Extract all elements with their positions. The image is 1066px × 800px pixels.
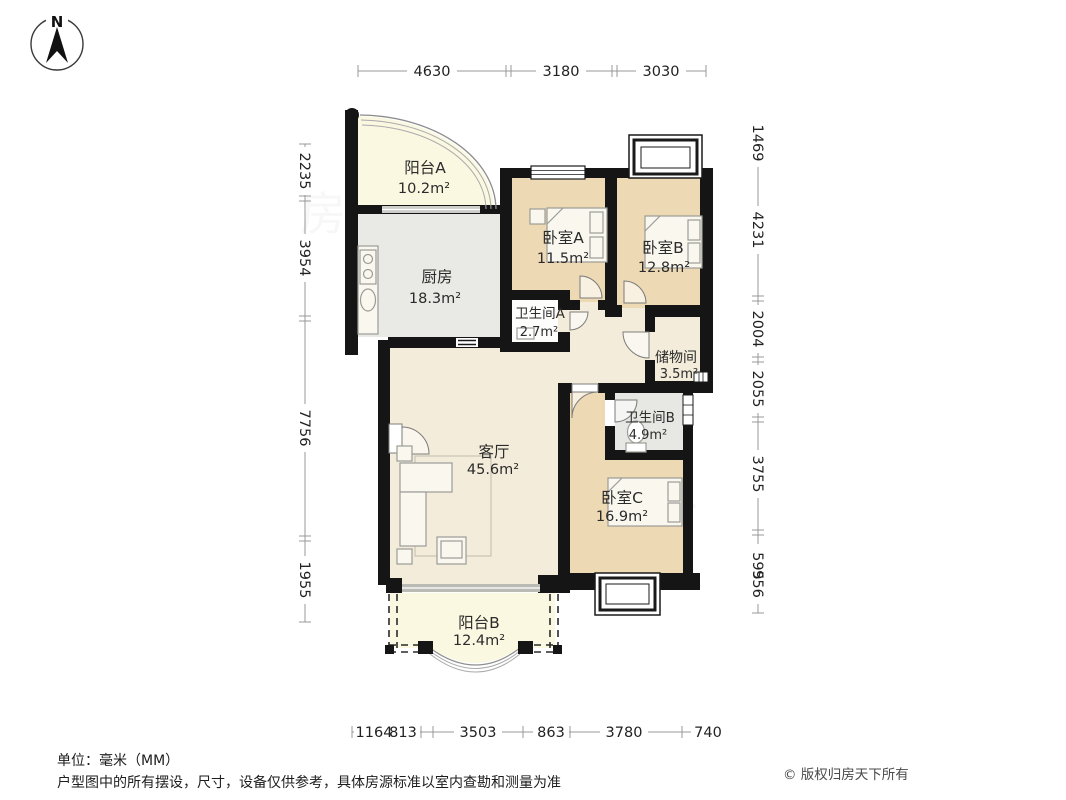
wall-bedroom-a-left — [500, 168, 512, 300]
dim-label-left: 7756 — [296, 410, 312, 447]
floorplan-canvas: 房天下 房天下 — [0, 0, 1066, 800]
disclaimer-note: 户型图中的所有摆设，尺寸，设备仅供参考，具体房源标准以室内查勘和测量为准 — [57, 772, 561, 792]
living-side-table — [397, 549, 412, 564]
wall-living-bottom-left — [386, 578, 402, 593]
wall-cap — [518, 641, 533, 654]
room-area-living: 45.6m² — [467, 462, 519, 478]
room-label-bedroom-b: 卧室B — [642, 239, 684, 257]
compass-icon: N — [31, 12, 83, 70]
room-label-bedroom-a: 卧室A — [542, 229, 584, 247]
room-label-storage: 储物间 — [655, 350, 697, 366]
wall-bedroom-c-bottom-l — [558, 573, 597, 590]
bedroom-c-door-leaf — [572, 384, 598, 392]
dim-label-top: 3180 — [543, 64, 580, 80]
toilet-tank — [626, 443, 646, 452]
room-label-bath-b: 卫生间B — [625, 410, 675, 426]
living-sofa-side — [400, 492, 426, 546]
wall-bath-a-left — [500, 290, 512, 352]
wall-corridor-bottom-2 — [598, 383, 610, 393]
dim-label-right: 4231 — [749, 212, 765, 249]
dim-label-bottom: 1164 — [356, 725, 393, 741]
bedroom-a-nightstand — [530, 209, 545, 224]
wall-cap — [418, 641, 433, 654]
wall-kitchen-corner — [345, 337, 358, 355]
wall-cap — [385, 645, 394, 654]
room-label-balcony-a: 阳台A — [404, 159, 446, 177]
room-area-bedroom-c: 16.9m² — [596, 509, 648, 525]
room-area-bedroom-b: 12.8m² — [638, 260, 690, 276]
floorplan-page: 房天下 房天下 — [0, 0, 1066, 800]
wall-kitchen-bottom — [388, 337, 502, 348]
wall-bedroom-c-bottom-r — [658, 573, 700, 590]
wall-bath-b-bottom — [605, 450, 693, 460]
wall-bath-a-right-2 — [558, 332, 570, 352]
wall-bath-b-top — [605, 383, 693, 393]
room-area-kitchen: 18.3m² — [409, 291, 461, 307]
wall-left-upper — [345, 110, 358, 355]
room-label-living: 客厅 — [478, 443, 509, 461]
wall-bedroom-b-bottom-2 — [645, 305, 712, 317]
room-area-balcony-b: 12.4m² — [453, 633, 505, 649]
room-label-balcony-b: 阳台B — [458, 614, 500, 632]
room-area-bath-a: 2.7m² — [520, 325, 559, 340]
dim-label-bottom: 813 — [389, 725, 417, 741]
wall-right-upper — [700, 168, 713, 390]
bed-pillow — [590, 212, 603, 233]
wall-bath-b-right-2 — [683, 425, 693, 460]
dim-label-left: 3954 — [296, 240, 312, 277]
wall-bedroom-b-bottom-1 — [605, 305, 622, 317]
dim-label-right: 2055 — [749, 371, 765, 408]
dim-label-left: 2235 — [296, 153, 312, 190]
living-sofa-top — [400, 463, 452, 492]
wall-cap — [553, 645, 562, 654]
dim-label-top: 4630 — [414, 64, 451, 80]
bedroom-a-window — [531, 166, 585, 179]
bed-pillow — [668, 482, 680, 501]
wall-living-bedroom-c-divider — [558, 390, 570, 575]
dim-label-left: 1955 — [296, 562, 312, 599]
copyright-note: © 版权归房天下所有 — [783, 763, 909, 783]
room-area-storage: 3.5m² — [660, 367, 699, 382]
unit-note: 单位：毫米（MM） — [57, 750, 179, 770]
room-label-bath-a: 卫生间A — [515, 306, 565, 322]
dim-label-bottom: 863 — [537, 725, 565, 741]
room-label-bedroom-c: 卧室C — [601, 489, 643, 507]
room-area-bedroom-a: 11.5m² — [537, 251, 589, 267]
wall-living-left — [378, 340, 390, 585]
bath-b-window — [683, 395, 693, 425]
bed-pillow — [668, 503, 680, 522]
room-area-balcony-a: 10.2m² — [398, 181, 450, 197]
bed-pillow — [688, 220, 700, 240]
wall-bath-b-right-1 — [683, 383, 693, 395]
wall-storage-left-1 — [645, 312, 655, 332]
dim-label-right: 2004 — [749, 311, 765, 348]
room-area-bath-b: 4.9m² — [629, 428, 668, 443]
living-side-table — [397, 446, 412, 461]
dim-label-bottom: 3780 — [606, 725, 643, 741]
dim-label-bottom: 3503 — [460, 725, 497, 741]
bed-pillow — [590, 237, 603, 258]
dim-label-right: 3755 — [749, 456, 765, 493]
dim-label-top: 3030 — [643, 64, 680, 80]
room-label-kitchen: 厨房 — [421, 268, 452, 286]
dim-label-bottom: 740 — [694, 725, 722, 741]
dim-label-right: 956 — [749, 570, 765, 598]
dim-label-right: 1469 — [749, 125, 765, 162]
kitchen-pass-window — [456, 338, 478, 347]
